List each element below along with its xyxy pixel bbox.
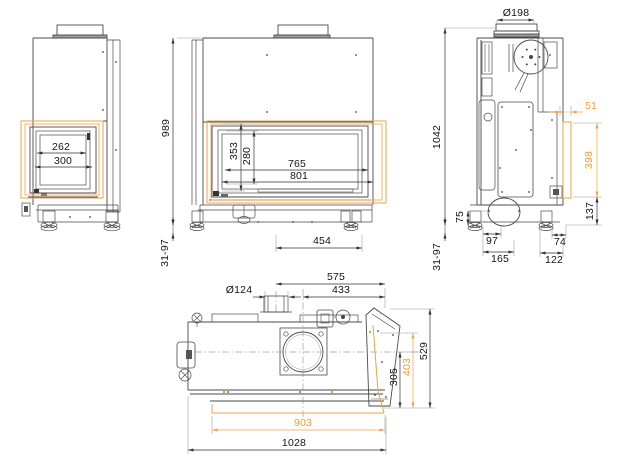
dim-front-glass-width: 801 xyxy=(290,171,308,182)
dim-right-floor-clearance: 75 xyxy=(455,211,466,223)
dim-top-outlet-offset: 433 xyxy=(332,285,350,296)
dim-right-plinth-height: 137 xyxy=(585,202,596,220)
dim-front-foot-range: 31-97 xyxy=(160,239,171,267)
dim-top-depth-to-axis: 305 xyxy=(389,368,400,386)
dim-right-glass-offset: 51 xyxy=(585,101,597,112)
dim-left-glass-inner-width: 262 xyxy=(52,142,70,153)
dim-top-overall-depth: 529 xyxy=(419,342,430,360)
dim-top-glass-depth: 403 xyxy=(402,358,413,376)
dim-top-overall-width: 1028 xyxy=(282,438,306,449)
drawing-svg xyxy=(0,0,624,460)
dim-right-flue-diameter: Ø198 xyxy=(503,8,530,19)
right-side-view-extension-lines xyxy=(445,28,602,257)
dim-front-glass-height: 353 xyxy=(229,142,240,160)
dim-right-overall-height: 1042 xyxy=(432,125,443,149)
right-side-view-dimension-lines xyxy=(445,20,597,253)
dim-front-base-width: 454 xyxy=(313,236,331,247)
dim-top-pipe-diameter: Ø124 xyxy=(226,285,253,296)
right-side-view-glass-strip xyxy=(563,122,571,198)
dim-left-glass-width: 300 xyxy=(54,156,72,167)
left-side-view-linework xyxy=(22,25,120,231)
dim-top-flue-pipe-offset: 575 xyxy=(327,272,345,283)
dim-front-overall-height: 989 xyxy=(161,119,172,137)
right-side-view-linework xyxy=(468,24,563,231)
dim-right-rear-depth: 122 xyxy=(545,255,563,266)
dim-right-duct-depth: 165 xyxy=(491,254,509,265)
front-view-extension-lines xyxy=(177,38,362,252)
drawing-page: 262 300 989 353 280 765 801 454 31-97 Ø1… xyxy=(0,0,624,460)
dim-right-foot-range: 31-97 xyxy=(432,243,443,271)
top-view-linework xyxy=(177,289,421,417)
dim-front-glass-inner-height: 280 xyxy=(242,147,253,165)
dim-front-glass-inner-width: 765 xyxy=(288,159,306,170)
dim-right-duct-offset: 97 xyxy=(486,236,498,247)
dim-right-rear-offset: 74 xyxy=(554,237,566,248)
dim-top-glass-width: 903 xyxy=(294,418,312,429)
dim-right-glass-strip-height: 398 xyxy=(584,151,595,169)
